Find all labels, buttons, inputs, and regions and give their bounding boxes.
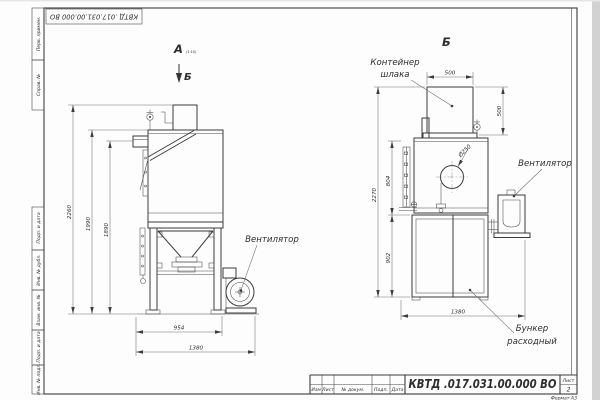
section-mark-label: Б (184, 72, 192, 83)
margin-col-vzam-inv: Взам. инв. № (36, 294, 42, 325)
section-view-label: Б (442, 35, 451, 49)
title-designation: КВТД .017.031.00.000 ВО (409, 377, 557, 391)
slag-container (423, 87, 480, 138)
container-label-line2: шлака (380, 70, 409, 80)
margin-col-perv-primen: Перв. примен. (36, 17, 42, 52)
dim-500-side: 500 (497, 105, 503, 116)
dim-804: 804 (386, 175, 392, 186)
margin-col-inv-dubl: Инв. № дубл. (36, 254, 42, 285)
section-fan-label: Вентилятор (518, 159, 572, 169)
front-fan-label: Вентилятор (245, 235, 299, 245)
title-col-izm: Изм (311, 387, 321, 393)
drawing-frame: Перв. примен. Справ. № Подп. и дата Инв.… (32, 8, 577, 395)
drawing-sheet: Перв. примен. Справ. № Подп. и дата Инв.… (0, 0, 600, 400)
margin-col-podp-data-2: Подп. и дата (36, 331, 42, 362)
title-block: Изм Лист № докум. Подп. Дата КВТД .017.0… (310, 375, 577, 400)
title-format: Формат А3 (551, 396, 577, 400)
section-view: Б (370, 35, 572, 347)
dim-1990: 1990 (86, 216, 92, 231)
margin-col-podp-data-1: Подп. и дата (36, 212, 42, 243)
dim-1380-section: 1380 (451, 310, 466, 316)
dim-1380-front: 1380 (189, 346, 204, 352)
dim-500-top: 500 (445, 71, 456, 77)
title-col-doc: № докум. (341, 387, 365, 393)
margin-col-sprav-no: Справ. № (36, 74, 42, 97)
front-fan (223, 268, 256, 313)
bunker-label-line2: расходный (506, 337, 557, 347)
stamp-designation: КВТД .017.031.00.000 ВО (50, 13, 138, 21)
title-col-list: Лист (321, 387, 334, 393)
drawing-canvas: Перв. примен. Справ. № Подп. и дата Инв.… (0, 0, 600, 400)
title-sheet-number: 2 (567, 387, 571, 394)
title-col-podp: Подп. (374, 387, 388, 393)
title-sheet-label: Лист (562, 378, 575, 384)
section-body (399, 118, 488, 213)
dim-954: 954 (174, 326, 185, 332)
title-col-data: Дата (391, 387, 404, 393)
container-label-line1: Контейнер (370, 58, 420, 68)
front-view: А (1:10) Б (67, 42, 299, 356)
dim-1890: 1890 (104, 222, 110, 237)
front-view-label: А (173, 42, 183, 56)
front-body (133, 105, 223, 222)
margin-col-inv-podl: Инв. № подл. (36, 363, 42, 395)
dim-902: 902 (386, 252, 392, 263)
bunker-box (412, 215, 488, 300)
section-callouts: Контейнер шлака Вентилятор Бункер расход… (370, 58, 572, 347)
dim-diameter-250: Ø250 (456, 143, 473, 160)
bunker-label-line1: Бункер (516, 324, 549, 334)
section-fan (488, 190, 530, 238)
front-view-label-note: (1:10) (186, 50, 196, 54)
front-support-frame (138, 222, 259, 314)
dim-2260: 2260 (67, 204, 73, 219)
dim-2270: 2270 (372, 187, 378, 202)
front-fan-leader (241, 245, 257, 290)
